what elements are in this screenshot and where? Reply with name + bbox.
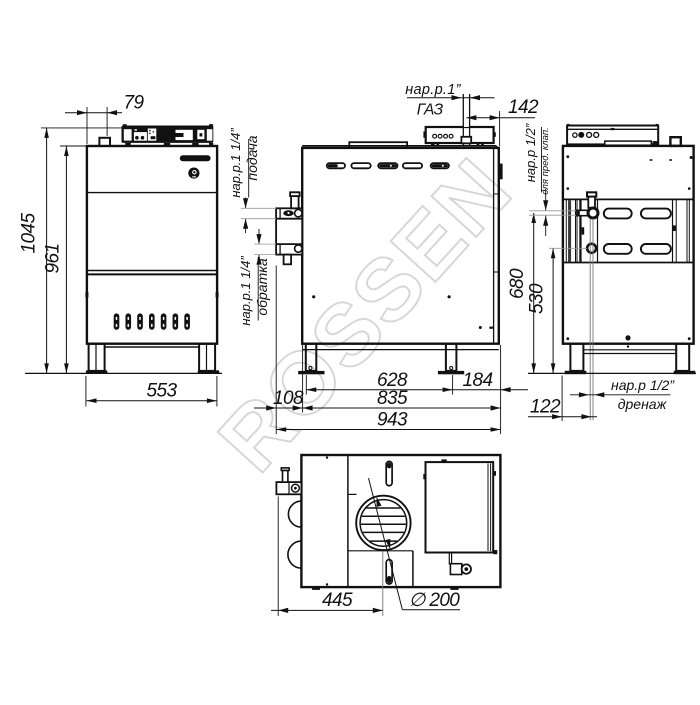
svg-text:нар.р 1/2”: нар.р 1/2” [523, 123, 538, 182]
svg-text:подача: подача [244, 135, 260, 180]
svg-text:122: 122 [530, 397, 561, 418]
svg-text:680: 680 [507, 268, 528, 299]
svg-text:нар.р.1 1/4”: нар.р.1 1/4” [228, 128, 243, 198]
svg-text:142: 142 [508, 97, 539, 118]
svg-text:553: 553 [147, 381, 178, 402]
svg-text:530: 530 [527, 283, 548, 314]
svg-text:1045: 1045 [19, 213, 40, 254]
svg-text:нар.р 1/2”: нар.р 1/2” [611, 377, 675, 393]
svg-text:943: 943 [377, 410, 408, 431]
svg-text:108: 108 [273, 388, 304, 409]
svg-text:обратка: обратка [254, 258, 270, 316]
svg-text:445: 445 [322, 590, 353, 611]
svg-text:184: 184 [463, 370, 493, 391]
svg-text:дренаж: дренаж [618, 396, 668, 412]
svg-text:нар.р.1 1/4”: нар.р.1 1/4” [238, 256, 253, 326]
svg-text:ГАЗ: ГАЗ [417, 102, 444, 119]
svg-text:для пред. клап.: для пред. клап. [540, 127, 551, 194]
svg-text:∅ 200: ∅ 200 [409, 590, 461, 611]
svg-text:961: 961 [43, 244, 64, 274]
svg-text:835: 835 [377, 388, 408, 409]
svg-text:79: 79 [124, 93, 145, 114]
svg-text:нар.р.1”: нар.р.1” [405, 82, 461, 98]
